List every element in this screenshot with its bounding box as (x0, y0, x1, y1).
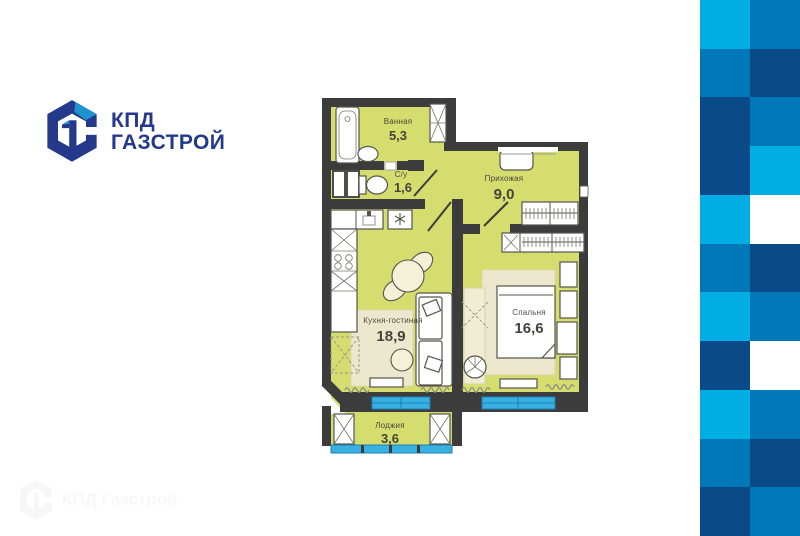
checker-cell (700, 49, 750, 98)
checker-cell (700, 292, 750, 341)
room-area-kitchen-living: 18,9 (376, 328, 405, 345)
checker-cell (750, 439, 800, 488)
checker-cell (700, 0, 750, 49)
room-area-bathroom: 5,3 (389, 128, 407, 143)
room-area-bedroom: 16,6 (514, 320, 543, 337)
checker-cell (750, 341, 800, 390)
room-name-loggia: Лоджия (375, 421, 405, 430)
checker-cell (700, 439, 750, 488)
room-area-loggia: 3,6 (381, 431, 399, 446)
checker-cell (700, 146, 750, 195)
room-name-bathroom: Ванная (384, 117, 413, 126)
hall-cabinet (500, 150, 533, 170)
nightstand (560, 357, 577, 379)
room-area-wc: 1,6 (394, 180, 412, 195)
riser-shaft (347, 171, 359, 197)
floor-plan: Ванная 5,3 С/у 1,6 Прихожая 9,0 Кухня-го… (318, 92, 592, 462)
checker-cell (750, 146, 800, 195)
checker-cell (700, 244, 750, 293)
room-name-wc: С/у (395, 170, 408, 179)
dining-table (392, 260, 424, 292)
checker-cell (750, 49, 800, 98)
wc-door-leaf (385, 162, 396, 170)
entrance-door (498, 147, 558, 152)
watermark-text: КПД Газстрой (62, 490, 178, 510)
developer-name: КПД ГАЗСТРОЙ (111, 110, 225, 154)
checker-cell (700, 97, 750, 146)
nightstand (560, 291, 577, 318)
watermark-icon (18, 479, 54, 521)
bathroom-sink (358, 147, 378, 162)
checker-cell (700, 341, 750, 390)
kitchen-window-sill (370, 378, 403, 387)
developer-name-line2: ГАЗСТРОЙ (111, 132, 225, 154)
checkerboard-decoration (700, 0, 800, 536)
toilet-tank (359, 176, 366, 194)
nightstand (560, 262, 577, 287)
wall-niche (580, 186, 588, 197)
checker-cell (700, 487, 750, 536)
checker-cell (750, 487, 800, 536)
checker-cell (750, 195, 800, 244)
checker-cell (700, 390, 750, 439)
room-name-hallway: Прихожая (485, 174, 524, 183)
checker-cell (750, 292, 800, 341)
watermark: КПД Газстрой (18, 479, 178, 521)
room-name-kitchen-living: Кухня-гостиная (363, 316, 422, 325)
riser-shaft (333, 171, 345, 197)
checker-cell (750, 390, 800, 439)
checker-cell (700, 195, 750, 244)
dresser (557, 322, 577, 354)
kpd-gazstroy-logo-icon (44, 99, 100, 164)
toilet-bowl (367, 176, 388, 194)
checker-cell (750, 0, 800, 49)
checker-cell (750, 97, 800, 146)
room-name-bedroom: Спальня (512, 308, 546, 317)
pouf (391, 349, 413, 371)
developer-name-line1: КПД (111, 110, 225, 132)
room-area-hallway: 9,0 (494, 186, 515, 203)
developer-logo: КПД ГАЗСТРОЙ (44, 99, 225, 164)
bedroom-window-sill (500, 379, 537, 388)
checker-cell (750, 244, 800, 293)
